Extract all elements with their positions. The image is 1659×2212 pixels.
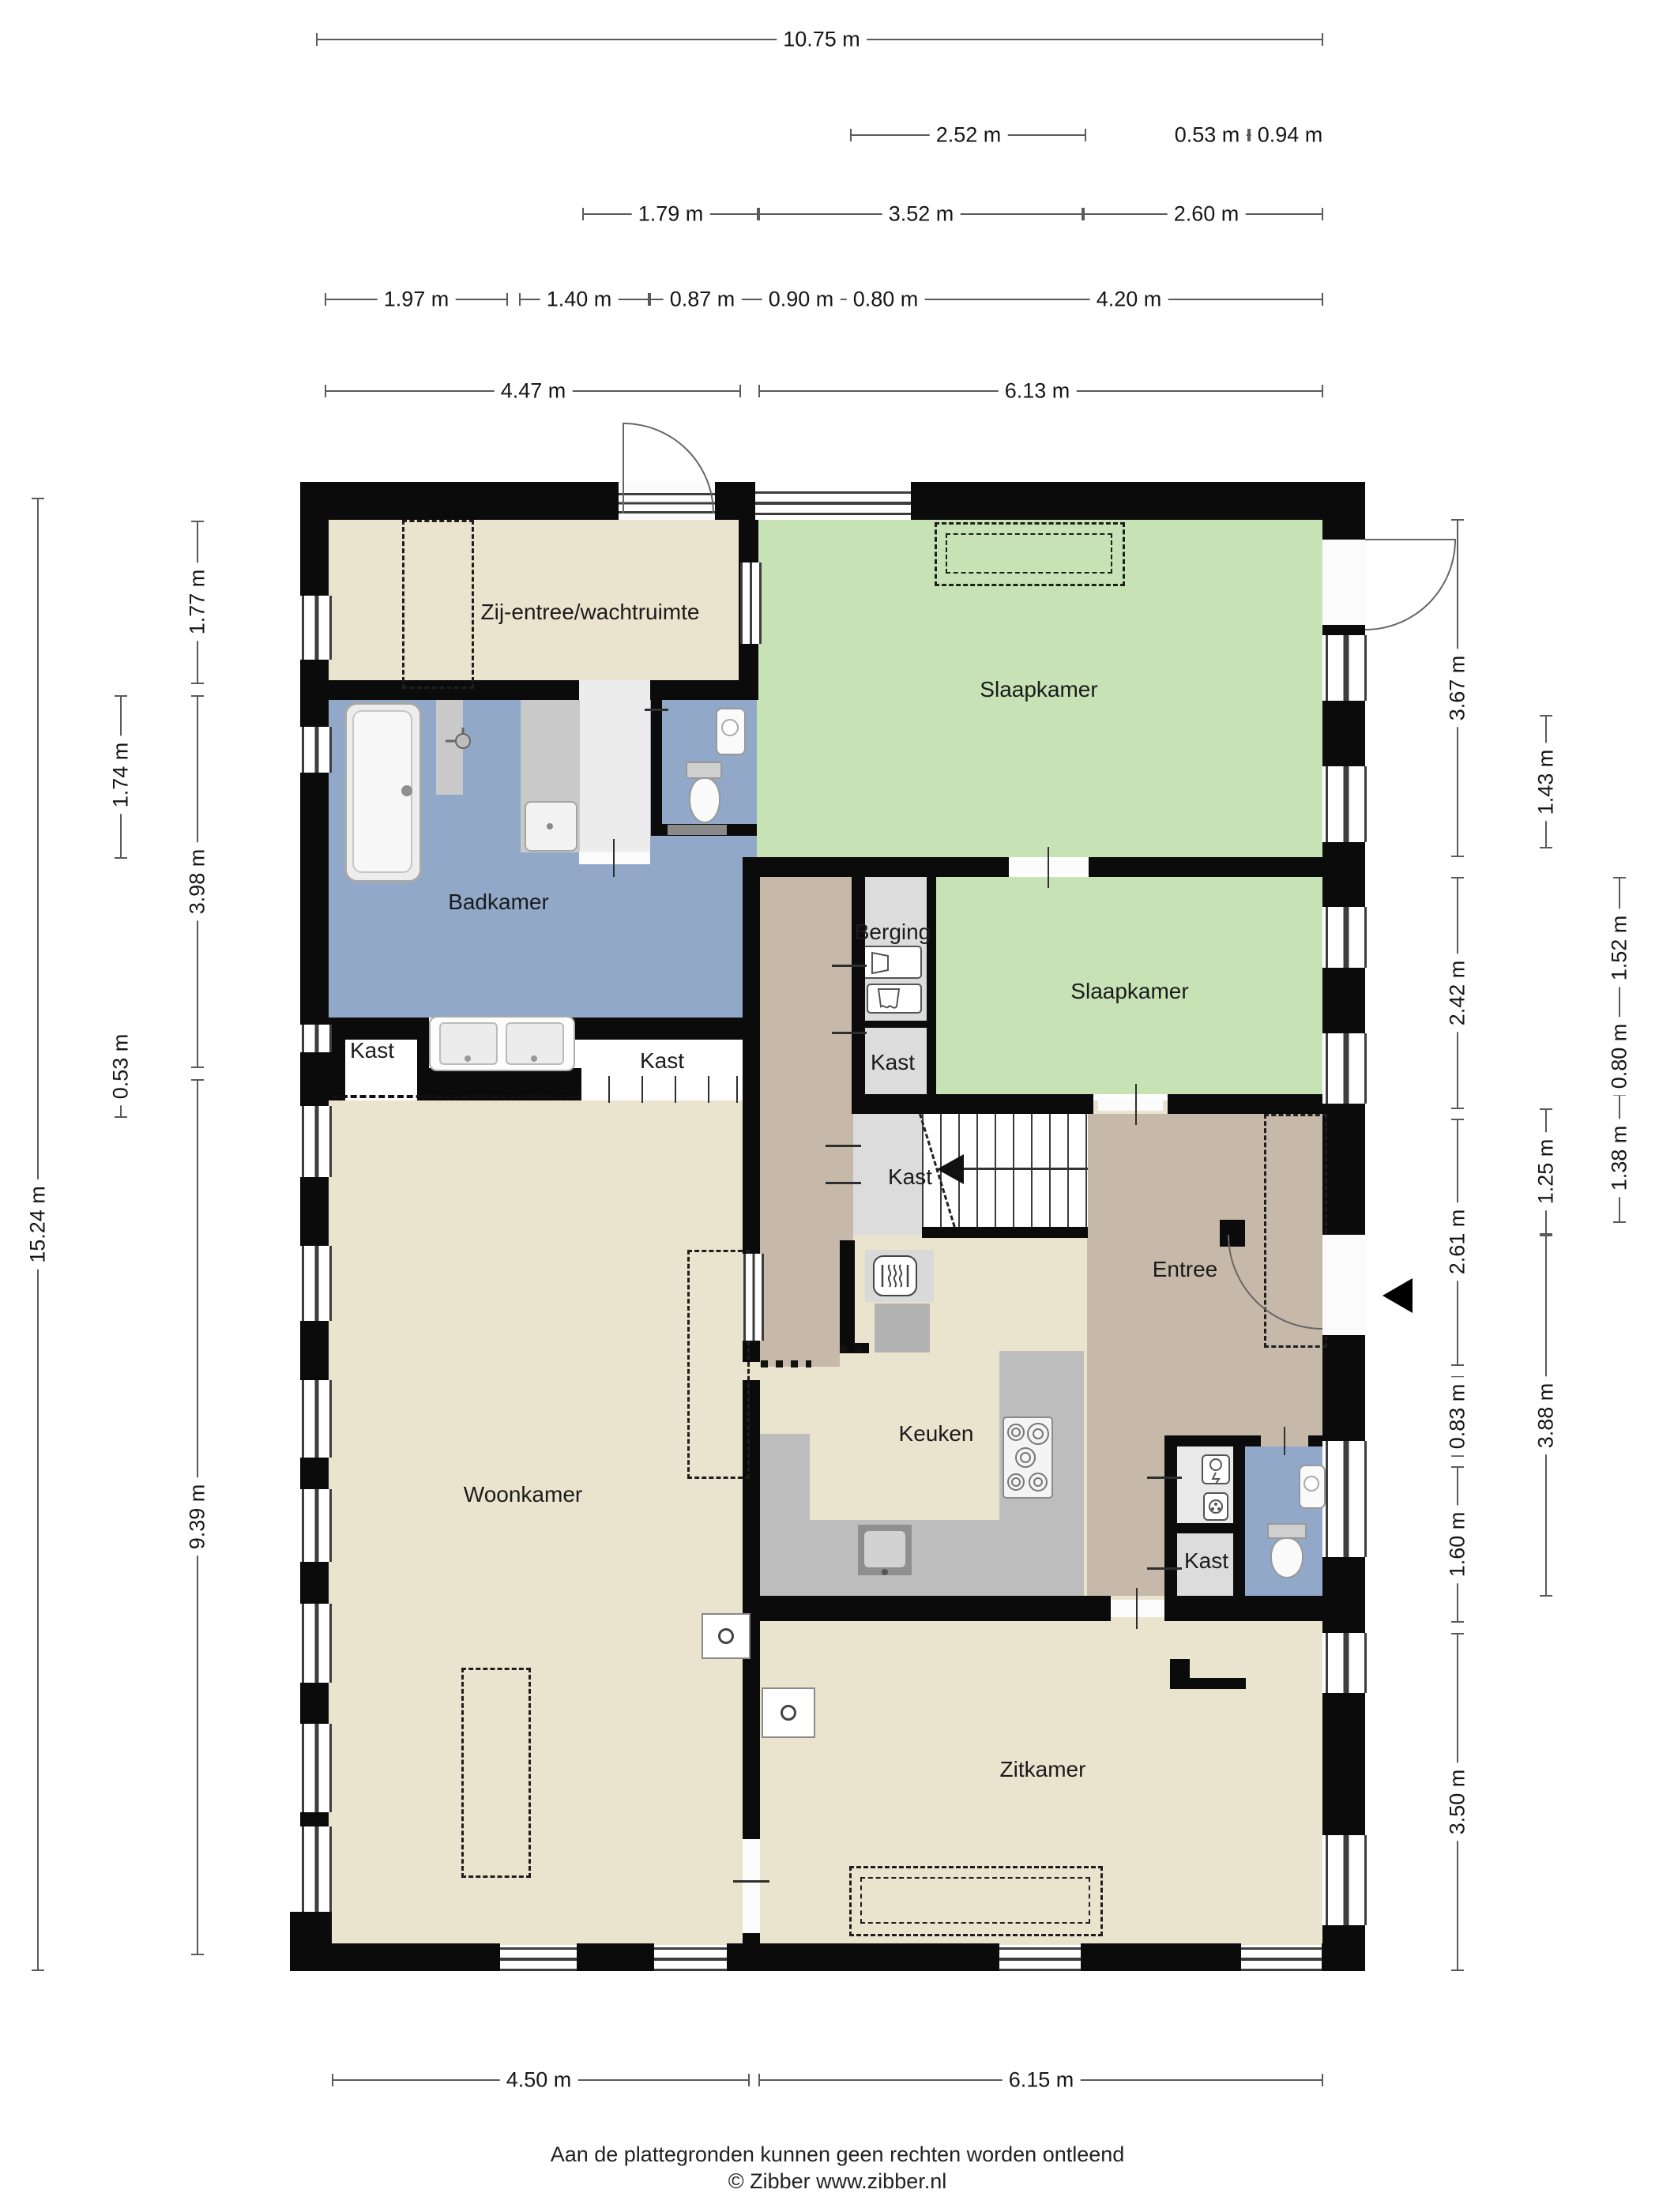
wall [417, 1040, 429, 1100]
wall [743, 1933, 760, 1945]
wall [715, 482, 755, 520]
room-label-kast-1: Kast [350, 1038, 394, 1063]
window [1326, 1835, 1367, 1925]
shower-mixer-icon [442, 724, 477, 758]
dimension-label: 0.80 m [847, 286, 925, 314]
door-tick [1136, 1588, 1138, 1629]
dimension-label: 1.74 m [107, 736, 135, 814]
power-meter-icon [1201, 1454, 1231, 1485]
dimension-label: 1.97 m [378, 286, 456, 314]
dryer-icon [866, 983, 923, 1014]
dimension-label: 3.98 m [184, 843, 212, 921]
wall [300, 1052, 329, 1106]
door-leaf [1365, 539, 1456, 540]
door-tick [1147, 1477, 1182, 1479]
toilet-bowl-icon [689, 777, 720, 823]
door-swing-arc [623, 423, 714, 513]
kitchen-counter [760, 1434, 810, 1599]
dimension-label: 2.60 m [1168, 201, 1246, 228]
door-tick [826, 1182, 861, 1184]
wall [1322, 625, 1365, 635]
room-label-woonkamer: Woonkamer [464, 1482, 582, 1507]
window [302, 727, 332, 773]
wall [927, 877, 936, 1094]
wall [1322, 1557, 1365, 1633]
door-swing-arc [1365, 540, 1456, 630]
wall [1322, 842, 1365, 907]
window [1326, 907, 1367, 968]
window [302, 1724, 332, 1812]
dimension-label: 3.52 m [882, 201, 961, 228]
room-label-kast-4: Kast [888, 1164, 932, 1190]
wall [1322, 1104, 1365, 1235]
dimension-label: 2.52 m [930, 122, 1008, 149]
window [500, 1947, 577, 1971]
window [302, 1380, 332, 1458]
kitchen-faucet-icon [882, 1569, 888, 1575]
wall [852, 1094, 932, 1114]
room-label-badkamer: Badkamer [448, 890, 549, 915]
disclaimer-text: Aan de plattegronden kunnen geen rechten… [551, 2142, 1125, 2167]
room-label-berging: Berging [855, 920, 931, 945]
wall [911, 482, 1322, 520]
interior-window [740, 562, 762, 644]
wall-stub [1170, 1678, 1246, 1689]
washing-machine-icon [861, 945, 923, 980]
door-tick [832, 1032, 867, 1034]
open-boundary-dotted [761, 1360, 811, 1367]
window [654, 1947, 727, 1971]
wall [1322, 1335, 1365, 1441]
window [302, 1604, 332, 1683]
wall [1164, 1435, 1177, 1599]
hand-basin-bowl-icon [721, 719, 739, 736]
boiler-cabinet [875, 1303, 930, 1352]
toilet-bowl-icon [1270, 1537, 1303, 1578]
wall [1089, 857, 1322, 877]
wall [922, 1227, 1088, 1238]
hand-basin-bowl-icon [1303, 1476, 1319, 1492]
room-label-keuken: Keuken [899, 1421, 974, 1446]
wall [1177, 1523, 1233, 1533]
window [302, 1025, 332, 1052]
wall [1322, 701, 1365, 766]
wall [1322, 1693, 1365, 1835]
window [302, 596, 332, 660]
furniture-outline [687, 1250, 750, 1479]
dimension-label: 1.38 m [1606, 1119, 1634, 1198]
wall [852, 877, 865, 1100]
door-tick [826, 1145, 861, 1147]
dimension-label: 0.53 m [107, 1028, 135, 1106]
wall [932, 1094, 1093, 1114]
wall [300, 1177, 329, 1246]
window [1326, 635, 1367, 701]
dimension-label: 0.83 m [1444, 1378, 1472, 1456]
room-label-zij-entree: Zij-entree/wachtruimte [481, 600, 700, 625]
rail-tick [675, 1076, 676, 1103]
dimension-label: 3.88 m [1533, 1377, 1560, 1455]
dimension-label: 1.43 m [1533, 743, 1560, 822]
rail-tick [736, 1076, 738, 1103]
dimension-label: 1.25 m [1533, 1133, 1560, 1211]
toilet-tank [686, 762, 722, 779]
toilet-tank [1267, 1523, 1307, 1539]
window [999, 1947, 1081, 1971]
window [302, 1826, 332, 1912]
dimension-label: 15.24 m [24, 1179, 52, 1270]
wall [1322, 968, 1365, 1033]
dimension-label: 10.75 m [777, 26, 867, 54]
wall [300, 1562, 329, 1604]
rail-tick [641, 1076, 643, 1103]
floor-hall [760, 877, 853, 1240]
wall [1168, 1094, 1322, 1114]
room-label-zitkamer: Zitkamer [1000, 1757, 1086, 1782]
window [755, 491, 911, 515]
door-threshold [1098, 1097, 1163, 1111]
open-boundary-dashed [332, 1095, 581, 1098]
wall [310, 1943, 500, 1971]
dimension-label: 1.40 m [540, 286, 619, 314]
wall [1322, 482, 1365, 540]
wall [1233, 1446, 1245, 1599]
door-threshold [579, 852, 650, 864]
stove-flue-icon [718, 1628, 734, 1644]
dimension-label: 3.67 m [1444, 649, 1472, 728]
wall [329, 1018, 429, 1040]
room-label-slaapkamer-2: Slaapkamer [1070, 979, 1188, 1004]
wall [572, 1018, 757, 1040]
door-tick [733, 1880, 769, 1883]
wall [300, 660, 329, 727]
dimension-label: 9.39 m [184, 1478, 212, 1556]
interior-opening [743, 1254, 764, 1341]
wall [300, 482, 329, 596]
dimension-label: 0.94 m [1251, 122, 1330, 149]
power-meter-icon [1202, 1492, 1229, 1522]
shower-drain-icon [547, 823, 553, 829]
wall [1177, 1435, 1261, 1446]
floor-hall-strip [579, 680, 650, 863]
dimension-label: 4.50 m [500, 2067, 578, 2094]
stair-arrow-icon [937, 1154, 964, 1184]
wall [651, 700, 662, 836]
dimension-label: 2.61 m [1444, 1203, 1472, 1281]
door-tick [1147, 1567, 1182, 1570]
wall [577, 1943, 654, 1971]
kitchen-counter [810, 1520, 1084, 1599]
dimension-label: 6.15 m [1003, 2067, 1081, 2094]
wall [300, 1321, 329, 1380]
room-label-slaapkamer-1: Slaapkamer [980, 677, 1097, 702]
wall [300, 1812, 329, 1826]
dimension-label: 1.52 m [1606, 909, 1634, 987]
window [1241, 1947, 1322, 1971]
dimension-label: 0.87 m [664, 286, 742, 314]
door-tick [832, 965, 867, 967]
vanity-faucet-icon [465, 1055, 471, 1062]
dimension-label: 0.80 m [1606, 1018, 1634, 1096]
window [302, 1106, 332, 1177]
bed-outline-inner [946, 533, 1112, 574]
front-door-opening [1322, 1235, 1365, 1335]
bathtub-faucet-icon [401, 785, 412, 796]
rail-tick [708, 1076, 709, 1103]
wall [840, 1240, 855, 1353]
door-opening [1322, 540, 1365, 625]
stove-flue-icon [781, 1705, 796, 1721]
entrance-arrow-icon [1382, 1278, 1413, 1313]
furniture-outline [461, 1668, 531, 1878]
window [1326, 1441, 1367, 1557]
vanity-faucet-icon [531, 1055, 537, 1062]
sofa-outline-inner [860, 1877, 1090, 1924]
wall [310, 482, 619, 520]
wall-opening [743, 1839, 760, 1933]
door-tick [645, 709, 668, 711]
furniture-outline [402, 520, 474, 689]
wall [1081, 1943, 1241, 1971]
copyright-text: © Zibber www.zibber.nl [728, 2169, 947, 2194]
wall [300, 773, 329, 1025]
dimension-label: 2.42 m [1444, 954, 1472, 1033]
room-label-kast-2: Kast [640, 1048, 684, 1074]
window [1326, 1033, 1367, 1104]
room-label-kast-5: Kast [1184, 1548, 1228, 1574]
wall [760, 1596, 1111, 1621]
floorplan-page: { "plan_type": "floor-plan", "rooms": { … [0, 0, 1659, 2212]
dimension-label: 1.77 m [184, 563, 212, 641]
room-label-kast-3: Kast [871, 1050, 915, 1075]
door-tick [1048, 847, 1049, 888]
door-leaf [623, 423, 624, 513]
wall [852, 1021, 927, 1028]
dimension-label: 1.60 m [1444, 1506, 1472, 1584]
wall [1308, 1435, 1322, 1446]
dimension-label: 3.50 m [1444, 1763, 1472, 1841]
wall [300, 1683, 329, 1724]
dimension-label: 4.47 m [495, 378, 573, 405]
window [1326, 1633, 1367, 1693]
window [302, 1246, 332, 1321]
wall [743, 877, 760, 1254]
door-tick [613, 839, 615, 877]
dimension-label: 6.13 m [999, 378, 1077, 405]
shelf [668, 825, 727, 835]
window [302, 1489, 332, 1562]
dimension-label: 4.20 m [1090, 286, 1168, 314]
wall [1322, 1943, 1365, 1971]
rail-tick [608, 1076, 610, 1103]
door-tick [1284, 1427, 1285, 1455]
wall [743, 857, 1009, 877]
kitchen-sink-basin [864, 1531, 905, 1567]
floor-hall [760, 1240, 840, 1367]
door-threshold [1111, 1600, 1164, 1617]
open-boundary-dotted [840, 1345, 869, 1352]
stair-direction-line [964, 1168, 1088, 1170]
gas-hob-icon [1002, 1416, 1054, 1499]
window [1326, 766, 1367, 842]
wall [727, 1943, 999, 1971]
room-label-entree: Entree [1153, 1257, 1218, 1282]
dimension-label: 0.53 m [1168, 122, 1247, 149]
dimension-label: 1.79 m [632, 201, 710, 228]
wall [300, 1458, 329, 1489]
radiator-icon [872, 1255, 918, 1297]
door-tick [1135, 1084, 1137, 1125]
wall [1164, 1596, 1322, 1621]
dimension-label: 0.90 m [762, 286, 841, 314]
